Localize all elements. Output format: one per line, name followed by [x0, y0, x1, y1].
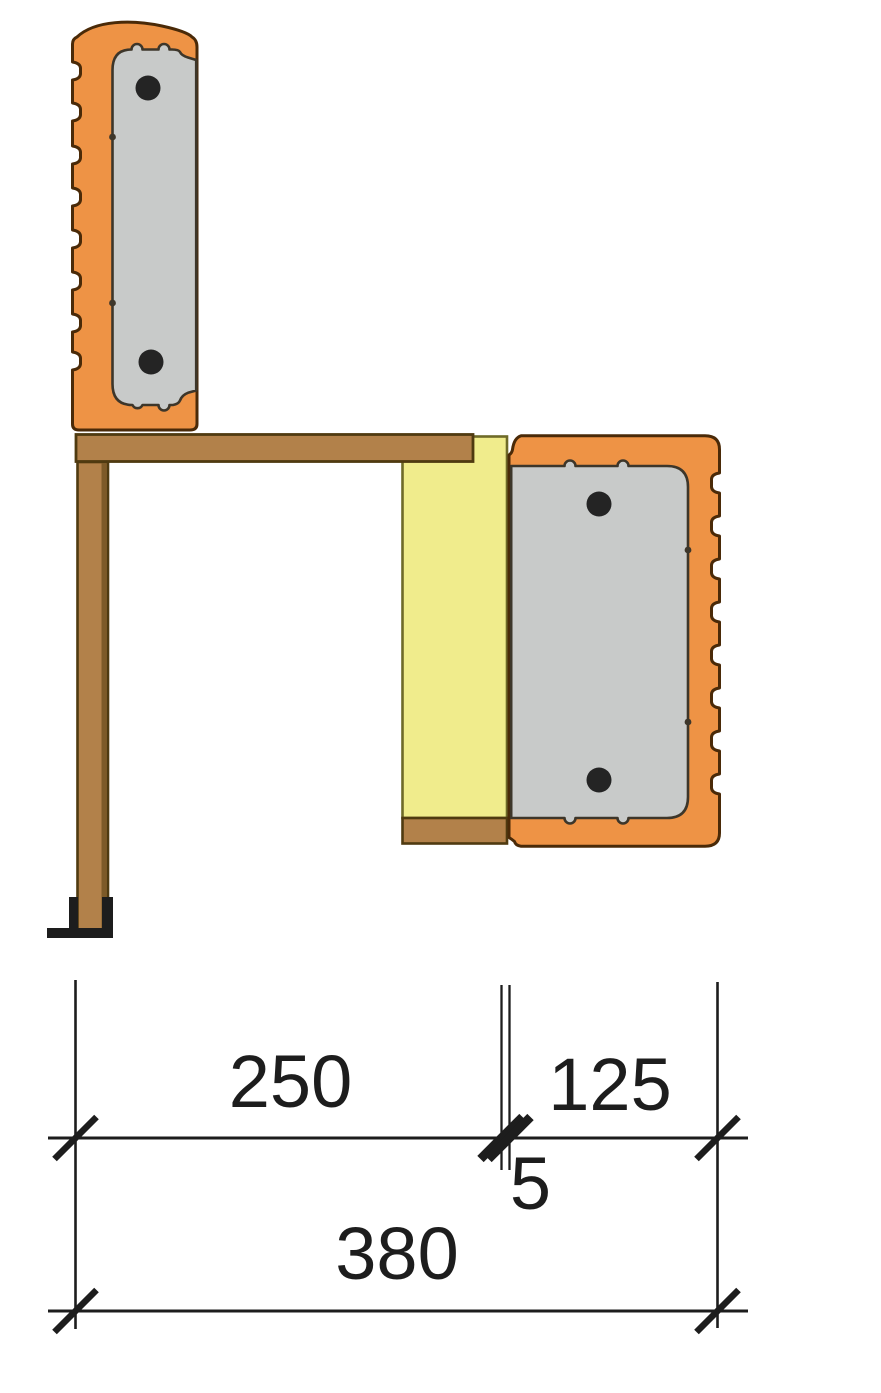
svg-text:250: 250	[229, 1040, 352, 1123]
svg-text:380: 380	[335, 1212, 458, 1295]
svg-text:125: 125	[548, 1043, 671, 1126]
svg-text:5: 5	[510, 1142, 551, 1225]
